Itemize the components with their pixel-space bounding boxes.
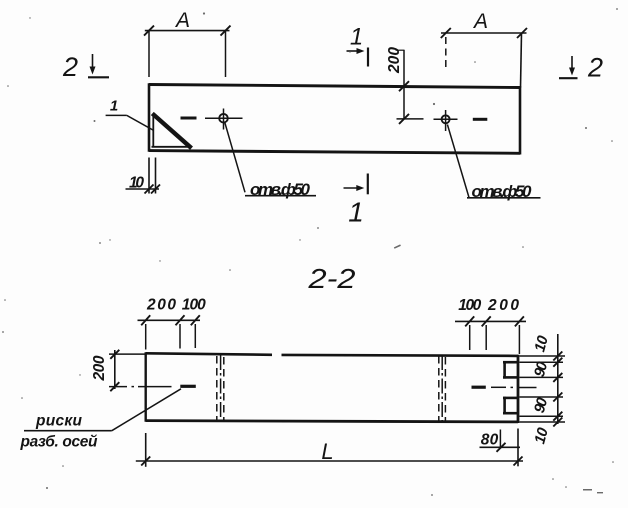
- svg-text:200: 200: [146, 297, 176, 314]
- svg-text:1: 1: [350, 24, 363, 51]
- svg-text:L: L: [321, 439, 333, 464]
- svg-text:10: 10: [531, 333, 552, 353]
- svg-text:2-2: 2-2: [307, 263, 356, 294]
- svg-text:90: 90: [531, 395, 551, 415]
- svg-text:10: 10: [129, 175, 144, 192]
- svg-text:10: 10: [531, 425, 552, 445]
- svg-text:2: 2: [587, 53, 603, 83]
- svg-text:2: 2: [62, 52, 78, 82]
- svg-text:100: 100: [458, 297, 481, 314]
- svg-text:A: A: [174, 9, 190, 32]
- svg-text:80: 80: [481, 432, 499, 449]
- svg-text:1: 1: [110, 98, 118, 115]
- svg-text:A: A: [472, 10, 488, 33]
- svg-text:200: 200: [91, 355, 108, 381]
- svg-text:отв.ф50: отв.ф50: [250, 180, 311, 199]
- svg-text:100: 100: [182, 297, 206, 314]
- svg-text:разб. осей: разб. осей: [20, 434, 99, 451]
- svg-text:отв.ф50: отв.ф50: [472, 182, 533, 201]
- svg-text:200: 200: [487, 297, 519, 314]
- svg-text:200: 200: [386, 47, 403, 74]
- svg-text:1: 1: [348, 197, 364, 228]
- svg-text:риски: риски: [35, 413, 83, 430]
